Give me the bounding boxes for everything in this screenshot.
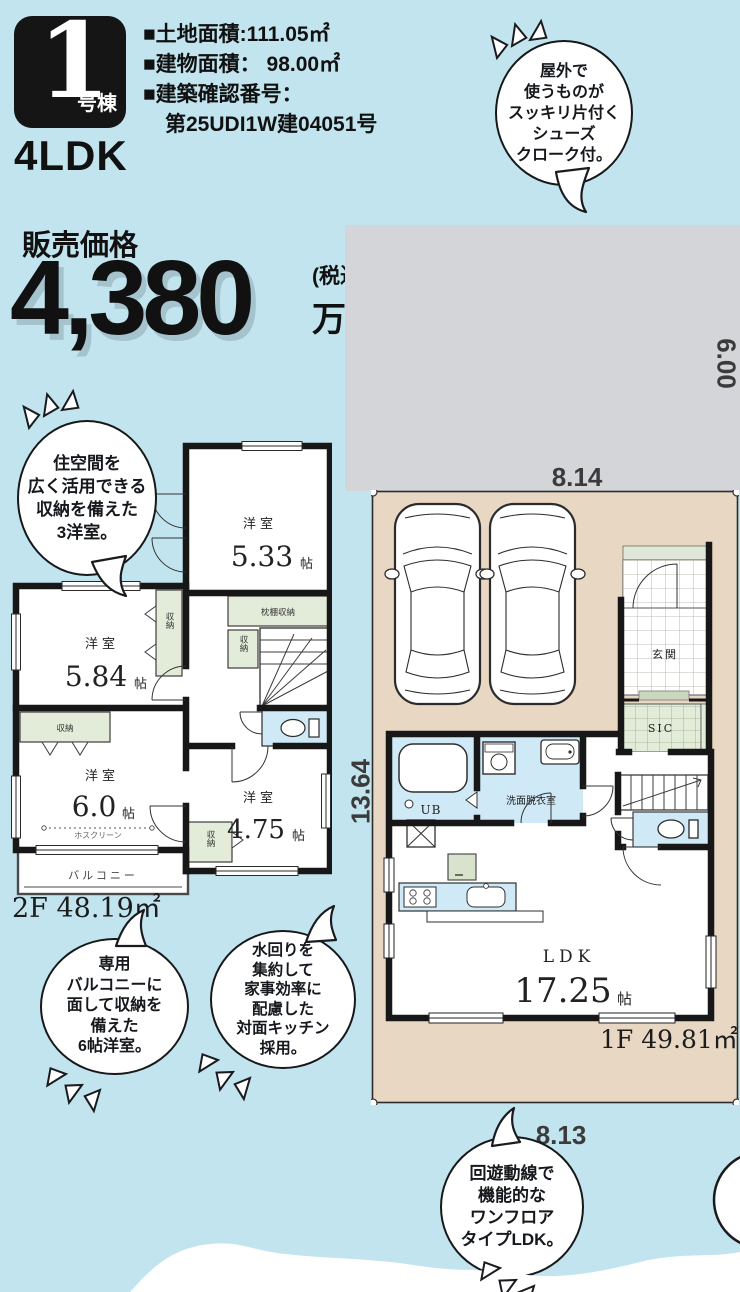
closet-hall-2f: 収納 [228, 630, 258, 668]
spec-line-confirmation: ■建築確認番号： [143, 80, 377, 110]
unit-badge: 1 号棟 [14, 16, 126, 128]
svg-text:ホスクリーン: ホスクリーン [74, 831, 122, 840]
room-60-unit: 帖 [122, 807, 135, 822]
svg-text:収納: 収納 [205, 829, 215, 848]
toilet-room [633, 812, 709, 847]
cloud-decoration [130, 1243, 740, 1292]
ldk-size: 17.25 [514, 971, 611, 1011]
svg-text:収納: 収納 [238, 634, 248, 653]
shelf-closet-2f: 枕棚収納 [228, 596, 328, 626]
svg-text:枕棚収納: 枕棚収納 [261, 607, 295, 618]
toilet-2f [262, 710, 330, 746]
plan-type-label: 4LDK [14, 132, 128, 180]
floor-area-2f: 2F 48.19㎡ [12, 886, 161, 925]
counter-front [427, 911, 543, 922]
room-533-size: 5.33 [231, 540, 293, 573]
spec-line-land: ■土地面積:111.05㎡ [143, 20, 377, 50]
room-475-unit: 帖 [292, 829, 305, 844]
car-icon-2 [480, 504, 585, 704]
ub-room: UB [391, 736, 477, 823]
sink-icon [467, 884, 505, 907]
room-584-unit: 帖 [134, 677, 147, 692]
bathtub-icon [399, 744, 467, 792]
floor-area-1f: 1F 49.81㎡ [600, 1020, 738, 1056]
sic-label: SIC [648, 722, 674, 735]
pantry-box [448, 854, 476, 880]
room-60-size: 6.0 [72, 790, 117, 823]
speech-bubble-water: 水回りを 集約して 家事効率に 配慮した 対面キッチン 採用。 [210, 930, 356, 1069]
ub-label: UB [421, 803, 442, 817]
entrance-mat [639, 691, 689, 700]
svg-text:収納: 収納 [164, 611, 174, 630]
vacant-lot [345, 225, 740, 491]
stove-icon [404, 887, 436, 907]
unit-suffix: 号棟 [77, 87, 117, 116]
washer-icon [483, 742, 515, 774]
balcony-label: バルコニー [68, 869, 138, 882]
washroom: 洗面脱衣室 [477, 736, 583, 823]
spec-line-building: ■建物面積： 98.00㎡ [143, 50, 377, 80]
property-specs: ■土地面積:111.05㎡ ■建物面積： 98.00㎡ ■建築確認番号： 第25… [143, 20, 377, 140]
spec-line-confirmation-number: 第25UDI1W建04051号 [143, 110, 377, 140]
speech-bubble-balcony: 専用 バルコニーに 面して収納を 備えた 6帖洋室。 [40, 938, 189, 1075]
car-icon-1 [385, 504, 490, 704]
room-584-name: 洋室 [85, 636, 119, 652]
room-533-unit: 帖 [300, 557, 313, 572]
partial-bubble [714, 1152, 740, 1248]
dim-lot-depth: 6.00 [711, 322, 740, 406]
vanity-icon [541, 740, 579, 764]
sic-closet: SIC [623, 704, 711, 752]
room-533-name: 洋室 [243, 516, 277, 532]
ldk-unit: 帖 [617, 990, 632, 1008]
entrance-porch [623, 546, 707, 608]
entrance-label: 玄関 [652, 647, 678, 661]
entrance-hall: 玄関 [623, 608, 707, 700]
room-475-size: 4.75 [227, 815, 285, 845]
toilet-icon [281, 719, 319, 737]
dim-lot-width: 8.14 [535, 462, 619, 493]
speech-bubble-rooms: 住空間を 広く活用できる 収納を備えた 3洋室。 [17, 420, 157, 576]
room-584-size: 5.84 [65, 660, 127, 693]
price-amount: 4,380 [10, 238, 250, 359]
ldk-label: LDK [543, 947, 596, 967]
room-475-name: 洋室 [243, 790, 277, 806]
toilet-icon [658, 820, 698, 838]
site-plan-1f: 玄関 SIC UB [371, 490, 739, 1105]
flyer-page: 1 号棟 4LDK ■土地面積:111.05㎡ ■建物面積： 98.00㎡ ■建… [0, 0, 740, 1292]
svg-text:収納: 収納 [56, 723, 73, 734]
speech-bubble-shoes: 屋外で 使うものが スッキリ片付く シューズ クローク付。 [495, 40, 633, 186]
speech-bubble-ldk: 回遊動線で 機能的な ワンフロア タイプLDK。 [440, 1136, 584, 1278]
room-60-name: 洋室 [85, 768, 119, 784]
